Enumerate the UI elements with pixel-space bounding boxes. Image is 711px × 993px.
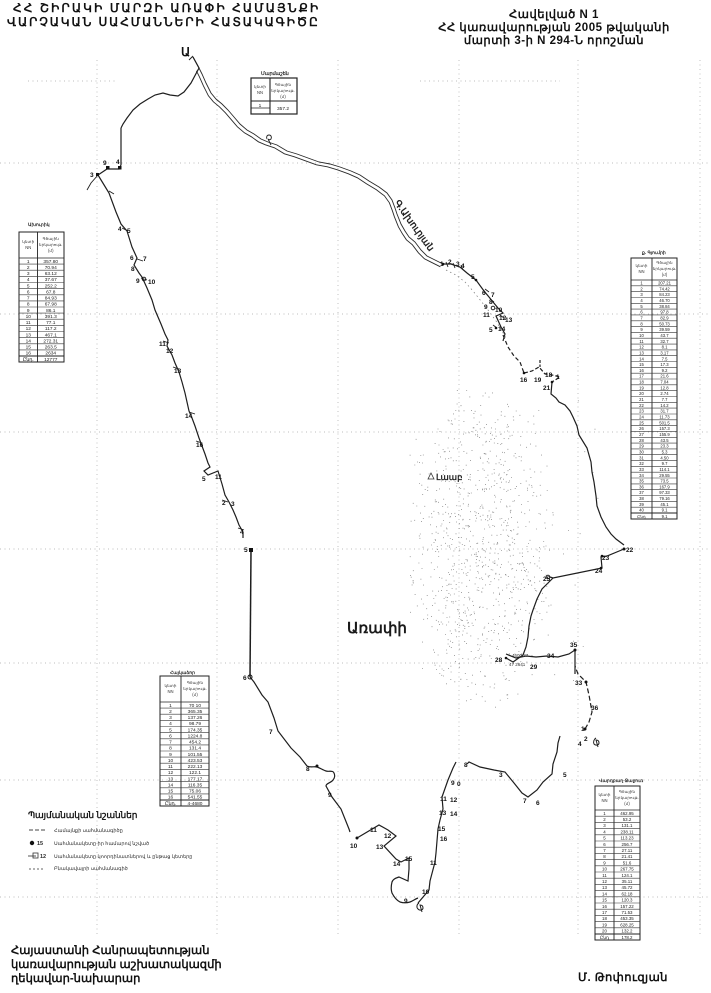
svg-text:28: 28 — [639, 438, 644, 443]
svg-text:73.5: 73.5 — [660, 479, 669, 484]
svg-text:Համայնքի սահմանագիծը: Համայնքի սահմանագիծը — [54, 828, 123, 834]
svg-text:NN: NN — [638, 269, 644, 274]
svg-text:3: 3 — [169, 715, 172, 721]
svg-text:157.3: 157.3 — [659, 426, 670, 431]
svg-text:10: 10 — [148, 279, 156, 286]
svg-text:46.70: 46.70 — [659, 298, 670, 303]
svg-text:82.9: 82.9 — [660, 316, 669, 321]
svg-text:29: 29 — [530, 664, 538, 671]
svg-text:24: 24 — [595, 568, 603, 575]
svg-text:34: 34 — [547, 653, 555, 660]
svg-text:14: 14 — [26, 338, 32, 344]
svg-text:Մարմաշեն: Մարմաշեն — [261, 71, 289, 77]
svg-text:26: 26 — [639, 426, 644, 431]
svg-text:11: 11 — [639, 339, 644, 344]
svg-text:7: 7 — [27, 296, 30, 302]
svg-text:267.75: 267.75 — [620, 867, 634, 872]
svg-text:4: 4 — [116, 159, 120, 166]
svg-text:3: 3 — [90, 172, 94, 179]
svg-text:12: 12 — [168, 770, 174, 776]
svg-text:23: 23 — [602, 555, 610, 562]
svg-text:8: 8 — [27, 302, 30, 308]
svg-text:5: 5 — [244, 547, 248, 554]
svg-text:NN: NN — [257, 90, 263, 95]
svg-text:20: 20 — [602, 929, 607, 934]
svg-text:9.2: 9.2 — [662, 368, 668, 373]
svg-text:15: 15 — [639, 362, 644, 367]
svg-text:Գծային: Գծային — [187, 680, 204, 685]
svg-text:10: 10 — [495, 307, 503, 314]
svg-text:6: 6 — [640, 310, 643, 315]
svg-text:13: 13 — [168, 776, 174, 782]
svg-text:124.1: 124.1 — [622, 873, 634, 878]
svg-text:178.2: 178.2 — [622, 935, 634, 940]
svg-text:կետի: կետի — [164, 683, 176, 688]
svg-text:կետի: կետի — [254, 84, 266, 89]
svg-text:53.2: 53.2 — [623, 817, 632, 822]
svg-text:77.1: 77.1 — [46, 320, 56, 326]
svg-text:23.3: 23.3 — [660, 444, 669, 449]
svg-text:155.9: 155.9 — [659, 432, 670, 437]
svg-text:122.1: 122.1 — [189, 770, 201, 776]
svg-text:1: 1 — [259, 103, 262, 109]
svg-text:9: 9 — [404, 898, 408, 905]
svg-text:35: 35 — [639, 479, 644, 484]
svg-text:7: 7 — [491, 292, 495, 299]
svg-text:84.23: 84.23 — [659, 292, 670, 297]
svg-text:32.7: 32.7 — [660, 339, 669, 344]
svg-text:6: 6 — [130, 255, 134, 262]
svg-text:252.2: 252.2 — [45, 283, 57, 289]
svg-text:0: 0 — [457, 781, 461, 788]
svg-text:84.93: 84.93 — [45, 296, 57, 302]
svg-text:10: 10 — [639, 333, 644, 338]
svg-text:NN: NN — [601, 798, 607, 803]
svg-text:9: 9 — [328, 792, 332, 799]
svg-text:11: 11 — [440, 796, 447, 803]
svg-text:3: 3 — [231, 501, 235, 508]
svg-text:5: 5 — [127, 228, 131, 235]
svg-text:467.1: 467.1 — [45, 332, 57, 338]
svg-text:Ընդ.: Ընդ. — [165, 801, 176, 807]
svg-text:157.22: 157.22 — [620, 904, 634, 909]
svg-text:5: 5 — [202, 476, 206, 483]
svg-text:Հայկաձոր: Հայկաձոր — [170, 670, 195, 676]
svg-text:2: 2 — [27, 265, 30, 271]
svg-text:222.13: 222.13 — [188, 764, 203, 770]
svg-text:113.23: 113.23 — [620, 836, 634, 841]
svg-text:2: 2 — [448, 259, 452, 266]
svg-text:(մ): (մ) — [192, 692, 198, 697]
svg-text:6: 6 — [482, 290, 486, 297]
svg-text:Ընդ: Ընդ — [600, 935, 609, 940]
svg-text:47 2641: 47 2641 — [509, 662, 526, 667]
svg-text:33: 33 — [639, 467, 644, 472]
svg-text:երկարութ.: երկարութ. — [39, 242, 62, 247]
svg-text:9: 9 — [640, 327, 643, 332]
svg-text:12: 12 — [639, 345, 644, 350]
svg-text:9: 9 — [484, 304, 488, 311]
svg-text:19: 19 — [602, 922, 607, 927]
svg-text:6: 6 — [243, 675, 247, 682]
svg-text:11: 11 — [483, 312, 490, 319]
svg-text:19: 19 — [534, 377, 542, 384]
svg-text:8: 8 — [306, 766, 310, 773]
svg-text:4.50: 4.50 — [660, 455, 669, 460]
svg-text:17: 17 — [602, 910, 607, 915]
svg-text:5: 5 — [603, 836, 606, 841]
svg-text:14: 14 — [185, 413, 193, 420]
svg-text:628.25: 628.25 — [620, 922, 634, 927]
svg-text:23: 23 — [639, 409, 644, 414]
svg-text:7: 7 — [269, 729, 273, 736]
svg-text:14: 14 — [168, 782, 174, 788]
svg-text:16: 16 — [639, 368, 644, 373]
svg-text:9.1: 9.1 — [662, 508, 668, 513]
svg-text:27.11: 27.11 — [622, 848, 633, 853]
svg-text:5: 5 — [563, 772, 567, 779]
svg-text:Գծային: Գծային — [619, 789, 636, 794]
svg-text:10: 10 — [422, 889, 430, 896]
svg-text:4: 4 — [578, 741, 582, 748]
svg-text:11.73: 11.73 — [659, 415, 670, 420]
svg-text:70.94: 70.94 — [45, 265, 57, 271]
svg-text:7.5: 7.5 — [662, 356, 668, 361]
svg-text:120.3: 120.3 — [622, 898, 634, 903]
svg-text:2: 2 — [603, 817, 606, 822]
svg-text:կետի: կետի — [598, 792, 610, 797]
svg-text:13: 13 — [439, 810, 447, 817]
svg-text:238.11: 238.11 — [620, 829, 634, 834]
svg-text:35.11: 35.11 — [622, 879, 633, 884]
svg-text:14.2: 14.2 — [660, 403, 669, 408]
svg-text:12: 12 — [40, 854, 46, 860]
svg-text:101.55: 101.55 — [188, 752, 203, 758]
svg-text:29: 29 — [639, 444, 644, 449]
svg-text:12: 12 — [384, 833, 392, 840]
svg-text:32: 32 — [639, 461, 644, 466]
svg-text:28: 28 — [495, 657, 503, 664]
svg-text:116.35: 116.35 — [188, 782, 203, 788]
svg-text:3.17: 3.17 — [660, 350, 669, 355]
svg-text:5: 5 — [640, 304, 643, 309]
svg-text:1: 1 — [440, 261, 444, 268]
svg-text:33: 33 — [575, 680, 583, 687]
svg-text:երկարութ.: երկարութ. — [653, 266, 676, 271]
svg-text:11: 11 — [602, 873, 607, 878]
svg-text:8: 8 — [169, 746, 172, 752]
svg-text:5: 5 — [471, 274, 475, 281]
svg-text:(մ): (մ) — [48, 248, 54, 253]
svg-text:6: 6 — [603, 842, 606, 847]
svg-text:9: 9 — [451, 780, 455, 787]
svg-text:39: 39 — [639, 502, 644, 507]
svg-text:63.12: 63.12 — [45, 271, 57, 277]
svg-text:2.74: 2.74 — [660, 391, 669, 396]
svg-text:39.59: 39.59 — [659, 327, 670, 332]
svg-text:2: 2 — [640, 286, 643, 291]
svg-text:9: 9 — [27, 308, 30, 314]
svg-text:4: 4 — [240, 529, 244, 536]
svg-text:14: 14 — [639, 356, 644, 361]
svg-text:501.5: 501.5 — [659, 420, 670, 425]
svg-text:Սահմանակետը իր համարով նշված: Սահմանակետը իր համարով նշված — [54, 841, 149, 847]
svg-text:36: 36 — [639, 484, 644, 489]
svg-text:21.6: 21.6 — [660, 374, 669, 379]
svg-text:5: 5 — [27, 283, 30, 289]
svg-text:17: 17 — [639, 374, 644, 379]
svg-text:6: 6 — [536, 800, 540, 807]
svg-text:12: 12 — [450, 797, 458, 804]
svg-text:137.26: 137.26 — [188, 715, 203, 721]
svg-text:4: 4 — [27, 277, 30, 283]
svg-text:14: 14 — [393, 861, 401, 868]
svg-text:14: 14 — [450, 811, 458, 818]
svg-text:14: 14 — [602, 891, 607, 896]
svg-text:38.84: 38.84 — [659, 304, 670, 309]
svg-text:13: 13 — [505, 317, 513, 324]
svg-text:27: 27 — [639, 432, 644, 437]
svg-text:(մ): (մ) — [280, 94, 286, 99]
svg-text:423.53: 423.53 — [188, 758, 203, 764]
svg-text:10: 10 — [602, 867, 607, 872]
svg-text:16: 16 — [602, 904, 607, 909]
svg-text:79.16: 79.16 — [659, 496, 670, 501]
svg-text:Գծային: Գծային — [43, 236, 60, 241]
svg-text:6: 6 — [169, 733, 172, 739]
svg-text:15: 15 — [168, 789, 174, 795]
svg-text:1: 1 — [603, 811, 606, 816]
svg-text:31: 31 — [639, 455, 644, 460]
svg-text:207.21: 207.21 — [658, 281, 671, 286]
svg-text:7: 7 — [603, 848, 606, 853]
svg-text:3: 3 — [456, 261, 460, 268]
svg-text:13: 13 — [26, 332, 32, 338]
svg-text:114.1: 114.1 — [659, 467, 670, 472]
svg-text:74.42: 74.42 — [659, 286, 670, 291]
svg-text:45.1: 45.1 — [660, 502, 669, 507]
svg-text:16: 16 — [440, 836, 448, 843]
svg-text:Գծային: Գծային — [656, 260, 673, 265]
svg-text:24: 24 — [639, 415, 644, 420]
svg-text:37.67: 37.67 — [45, 277, 57, 283]
svg-text:9: 9 — [169, 752, 172, 758]
svg-text:8: 8 — [489, 299, 493, 306]
svg-text:(մ): (մ) — [624, 801, 630, 806]
svg-text:1224.8: 1224.8 — [188, 733, 203, 739]
svg-text:կետի: կետի — [22, 239, 34, 244]
svg-text:256.7: 256.7 — [622, 842, 634, 847]
svg-text:30: 30 — [639, 450, 644, 455]
svg-text:6: 6 — [27, 289, 30, 295]
svg-text:453.35: 453.35 — [620, 916, 634, 921]
svg-text:177.17: 177.17 — [188, 776, 203, 782]
svg-text:9: 9 — [603, 860, 606, 865]
svg-text:357.2: 357.2 — [277, 106, 289, 112]
svg-text:11: 11 — [430, 860, 437, 867]
svg-text:NN: NN — [25, 245, 31, 250]
svg-text:51.6: 51.6 — [623, 860, 632, 865]
svg-text:3: 3 — [27, 271, 30, 277]
svg-text:97.8: 97.8 — [660, 310, 669, 315]
svg-text:14: 14 — [498, 326, 506, 333]
svg-text:22: 22 — [639, 403, 644, 408]
svg-text:31.7: 31.7 — [660, 409, 669, 414]
svg-text:10: 10 — [26, 314, 32, 320]
svg-text:131.4: 131.4 — [189, 746, 201, 752]
svg-text:11: 11 — [370, 827, 377, 834]
svg-text:12.8: 12.8 — [660, 385, 669, 390]
svg-text:18: 18 — [639, 380, 644, 385]
svg-text:1: 1 — [581, 726, 585, 733]
svg-text:21: 21 — [543, 385, 551, 392]
svg-text:5: 5 — [169, 727, 172, 733]
svg-text:Ընդ: Ընդ — [637, 514, 646, 519]
svg-text:36: 36 — [591, 705, 599, 712]
svg-text:8: 8 — [603, 854, 606, 859]
svg-text:8.1: 8.1 — [662, 345, 668, 350]
svg-text:29.55: 29.55 — [659, 473, 670, 478]
svg-text:(մ): (մ) — [662, 272, 668, 277]
svg-text:Առափի: Առափի — [347, 620, 407, 637]
svg-text:7: 7 — [640, 316, 643, 321]
svg-text:462.95: 462.95 — [620, 811, 634, 816]
svg-text:Պայմանական նշաններ: Պայմանական նշաններ — [28, 810, 138, 821]
svg-text:7: 7 — [523, 798, 527, 805]
svg-text:Ընդ.: Ընդ. — [23, 357, 34, 363]
svg-text:10: 10 — [168, 758, 174, 764]
svg-text:167.9: 167.9 — [659, 484, 670, 489]
svg-text:67.98: 67.98 — [45, 302, 57, 308]
svg-text:15: 15 — [405, 856, 413, 863]
svg-text:երկարութ.: երկարութ. — [271, 88, 294, 93]
svg-text:75.06: 75.06 — [189, 789, 201, 795]
svg-text:70 10: 70 10 — [189, 703, 201, 709]
svg-text:7.7: 7.7 — [662, 397, 668, 402]
svg-text:21.41: 21.41 — [622, 854, 634, 859]
svg-text:98.79: 98.79 — [189, 721, 201, 727]
svg-text:38: 38 — [639, 496, 644, 501]
svg-text:67.8: 67.8 — [46, 289, 56, 295]
svg-text:Սահմանակետը կոորդինատներով և ը: Սահմանակետը կոորդինատներով և ընթաց կետեր… — [54, 854, 192, 860]
svg-text:25: 25 — [543, 576, 551, 583]
svg-text:NN: NN — [167, 689, 173, 694]
svg-text:15: 15 — [37, 841, 43, 847]
svg-text:454.2: 454.2 — [189, 740, 201, 746]
svg-text:11: 11 — [159, 341, 166, 348]
svg-text:4: 4 — [461, 263, 465, 270]
svg-text:391.3: 391.3 — [45, 314, 57, 320]
svg-text:15: 15 — [26, 345, 32, 351]
svg-text:25: 25 — [639, 420, 644, 425]
svg-text:117.2: 117.2 — [45, 326, 57, 332]
svg-text:11: 11 — [215, 474, 222, 481]
svg-text:7: 7 — [143, 256, 147, 263]
svg-text:1: 1 — [640, 281, 643, 286]
svg-text:7.04: 7.04 — [660, 380, 669, 385]
svg-text:18: 18 — [602, 916, 607, 921]
svg-text:174.35: 174.35 — [188, 727, 203, 733]
svg-text:13: 13 — [602, 885, 607, 890]
svg-text:16: 16 — [520, 377, 528, 384]
svg-text:13: 13 — [174, 368, 182, 375]
svg-text:2: 2 — [584, 736, 588, 743]
svg-text:2: 2 — [222, 500, 226, 507]
svg-text:3: 3 — [640, 292, 643, 297]
svg-text:5: 5 — [489, 327, 493, 334]
svg-text:13: 13 — [376, 844, 384, 851]
svg-text:4: 4 — [169, 721, 172, 727]
svg-text:21: 21 — [639, 397, 644, 402]
svg-text:9.1: 9.1 — [662, 514, 668, 519]
svg-text:կետի: կետի — [635, 263, 647, 268]
svg-text:15: 15 — [438, 826, 446, 833]
svg-text:50.73: 50.73 — [659, 321, 670, 326]
svg-text:9: 9 — [136, 278, 140, 285]
svg-text:8: 8 — [640, 321, 643, 326]
svg-text:3: 3 — [499, 772, 503, 779]
svg-text:35: 35 — [570, 642, 578, 649]
svg-text:9: 9 — [103, 160, 107, 167]
svg-text:9.7: 9.7 — [662, 461, 668, 466]
svg-text:43.5: 43.5 — [660, 438, 669, 443]
svg-text:86.1: 86.1 — [46, 308, 56, 314]
svg-text:ք. Գյումրի: ք. Գյումրի — [641, 250, 666, 256]
svg-text:երկարութ.: երկարութ. — [183, 686, 206, 691]
svg-text:երկարութ.: երկարութ. — [615, 795, 638, 800]
svg-text:272.31: 272.31 — [43, 338, 58, 344]
svg-text:19: 19 — [639, 385, 644, 390]
svg-text:Ախուրիկ: Ախուրիկ — [28, 222, 50, 228]
svg-text:357.80: 357.80 — [43, 259, 58, 265]
svg-text:5.3: 5.3 — [662, 450, 668, 455]
svg-text:17.3: 17.3 — [660, 362, 669, 367]
svg-text:Վարդբաղ-Ջաջուռ: Վարդբաղ-Ջաջուռ — [599, 778, 644, 784]
svg-text:Գծային: Գծային — [275, 82, 292, 87]
svg-text:8: 8 — [464, 762, 468, 769]
svg-text:1: 1 — [27, 259, 30, 265]
svg-text:16: 16 — [196, 442, 204, 449]
svg-text:45.72: 45.72 — [622, 885, 634, 890]
svg-text:Ա: Ա — [181, 45, 190, 59]
svg-text:22: 22 — [626, 547, 634, 554]
svg-text:3: 3 — [603, 823, 606, 828]
svg-text:4-4680: 4-4680 — [188, 801, 203, 807]
svg-text:12: 12 — [26, 326, 32, 332]
svg-text:34: 34 — [639, 473, 644, 478]
svg-text:43.7: 43.7 — [660, 333, 669, 338]
svg-text:62.18: 62.18 — [622, 891, 634, 896]
svg-text:13: 13 — [639, 350, 644, 355]
svg-text:11: 11 — [168, 764, 173, 770]
svg-text:12: 12 — [166, 348, 174, 355]
svg-text:97.33: 97.33 — [659, 490, 670, 495]
svg-text:7: 7 — [169, 740, 172, 746]
svg-text:2: 2 — [169, 709, 172, 715]
svg-text:263.5: 263.5 — [45, 345, 57, 351]
svg-text:15: 15 — [602, 898, 607, 903]
svg-text:11: 11 — [26, 320, 31, 326]
svg-text:10: 10 — [350, 843, 358, 850]
svg-text:8: 8 — [131, 266, 135, 273]
svg-text:4: 4 — [118, 226, 122, 233]
svg-text:40: 40 — [639, 508, 644, 513]
svg-text:37: 37 — [639, 490, 644, 495]
svg-text:4: 4 — [640, 298, 643, 303]
svg-text:1: 1 — [556, 374, 560, 381]
svg-text:18: 18 — [545, 372, 553, 379]
svg-text:1: 1 — [169, 703, 172, 709]
